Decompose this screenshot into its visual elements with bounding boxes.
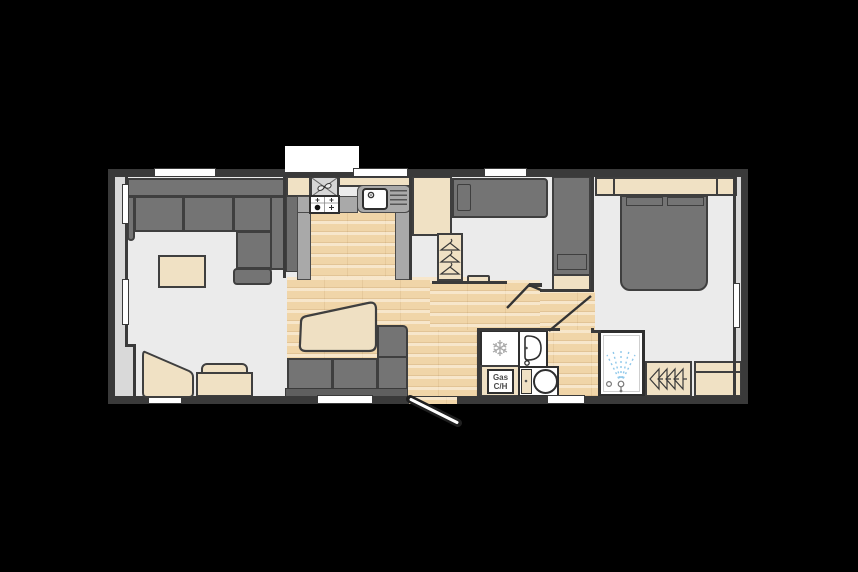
lounge-sofa-seat (183, 196, 234, 232)
floorplan-canvas: ❄ Gas C/H (0, 0, 858, 572)
dining-sofa-seat (287, 358, 333, 390)
gas-label-line1: Gas (493, 373, 508, 382)
kitchen-tall-unit-right (412, 176, 452, 236)
toilet-cistern (521, 369, 532, 394)
outer-wall-right (741, 169, 748, 404)
kitchen-wood-floor (310, 210, 395, 280)
kitchen-counter-top-left (286, 176, 311, 197)
hangers-icon (439, 235, 461, 279)
overhead-storage-divider (613, 178, 615, 195)
hangers-side-icon (647, 363, 690, 395)
lounge-sofa-arm-bottom (233, 268, 272, 285)
window (484, 168, 527, 177)
hall-shower-wall (591, 330, 601, 333)
twin-bed-1-pillow (457, 184, 471, 211)
gas-label-line2: C/H (494, 382, 508, 391)
master-wardrobe (645, 361, 692, 397)
left-interior-wall-lower (133, 346, 136, 398)
lounge-sofa-backrest (127, 178, 285, 197)
washbasin-unit (518, 330, 548, 368)
dining-sofa-seat (332, 358, 378, 390)
fridge-unit: ❄ (480, 330, 520, 367)
double-bed (620, 195, 708, 291)
hallway-wood-floor-right (540, 290, 595, 332)
partition-twin-master (591, 172, 594, 292)
twinroom-bottom-wall-stub (529, 283, 542, 287)
shower-spray-icon (601, 333, 642, 394)
hallway-wood-floor (430, 280, 540, 330)
window (154, 168, 216, 177)
window (547, 395, 585, 404)
sink-drainer-icon (390, 190, 407, 207)
window-left-wall (122, 279, 129, 325)
bathroom-top-wall (477, 328, 560, 331)
shower-cubicle (598, 330, 645, 397)
left-end-exterior-band-lower (114, 344, 133, 396)
lounge-sofa-seat (134, 196, 184, 232)
twin-bed-2-shelf-outline (557, 254, 587, 270)
sink-bowl (362, 188, 388, 210)
twin-wardrobe (437, 233, 463, 281)
dining-sofa-cushion-line (379, 356, 406, 358)
hall-wall-under-shelf (540, 289, 593, 292)
bathroom-left-wall (477, 330, 480, 397)
entrance-opening (409, 397, 457, 404)
snowflake-icon: ❄ (491, 336, 509, 362)
footstool-seat (196, 372, 253, 397)
twinroom-bottom-wall (432, 281, 507, 284)
window-right-wall (733, 283, 740, 328)
double-bed-pillow (667, 197, 704, 206)
window (317, 395, 373, 404)
window-left-wall (122, 184, 129, 224)
window (148, 395, 182, 404)
roof-vent-box (285, 146, 359, 172)
partition-lounge-kitchen (283, 172, 286, 278)
double-bed-pillow (626, 197, 663, 206)
toilet-bowl (533, 369, 558, 394)
overhead-storage-divider (716, 178, 718, 195)
gas-central-heating-box: Gas C/H (487, 369, 514, 394)
partition-kitchen-twinroom (409, 172, 412, 280)
lounge-sofa-corner-seat (233, 196, 272, 232)
window (353, 168, 408, 177)
dining-sofa-backrest (377, 325, 408, 397)
hob-icon (309, 195, 340, 214)
lounge-sofa-seat-right (236, 231, 272, 269)
washbasin-icon (520, 332, 546, 366)
coffee-table (158, 255, 206, 288)
outer-wall-left (108, 169, 115, 404)
